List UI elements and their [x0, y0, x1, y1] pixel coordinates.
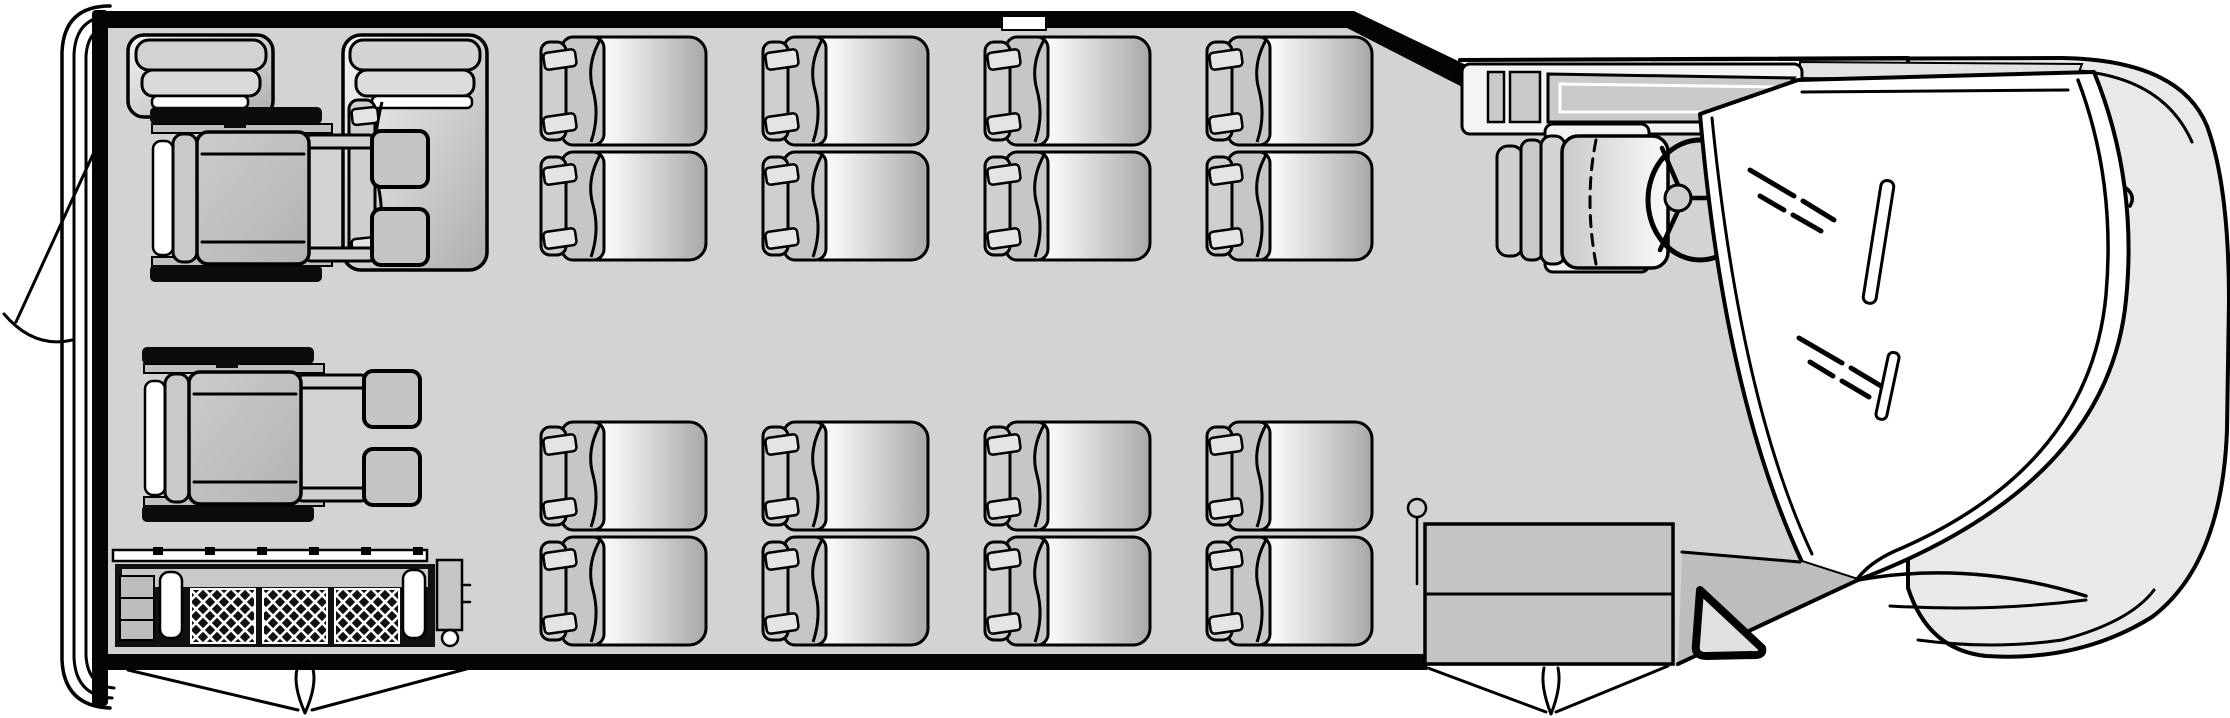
lift-rail-stud — [413, 547, 423, 555]
lift-rail-stud — [309, 547, 319, 555]
entry-door-swing-arcs — [1428, 666, 1668, 714]
lift-platform-panel — [191, 589, 255, 643]
wheelchair-lift — [113, 547, 470, 647]
lift-platform-panel — [263, 589, 327, 643]
entry-step — [1408, 499, 1673, 664]
lift-rail-stud — [205, 547, 215, 555]
bus-floorplan-svg — [0, 0, 2230, 718]
lift-platform-panel — [335, 589, 399, 643]
lift-rail-stud — [153, 547, 163, 555]
grab-pole-base — [1408, 499, 1426, 517]
rear-wall — [92, 10, 108, 706]
emergency-exit-marker — [1002, 16, 1046, 30]
rear-door-swing-line — [4, 150, 95, 342]
bus-floorplan-page — [0, 0, 2230, 718]
rear-side-seat-left — [128, 35, 273, 117]
lift-platform-crosshatch — [191, 589, 399, 643]
lift-end-block-left — [120, 576, 154, 640]
driver-seat — [1497, 124, 1668, 272]
lift-pump-unit — [437, 560, 462, 630]
lift-rail-stud — [257, 547, 267, 555]
lift-rail-stud — [361, 547, 371, 555]
lift-pump-caster — [442, 630, 458, 646]
